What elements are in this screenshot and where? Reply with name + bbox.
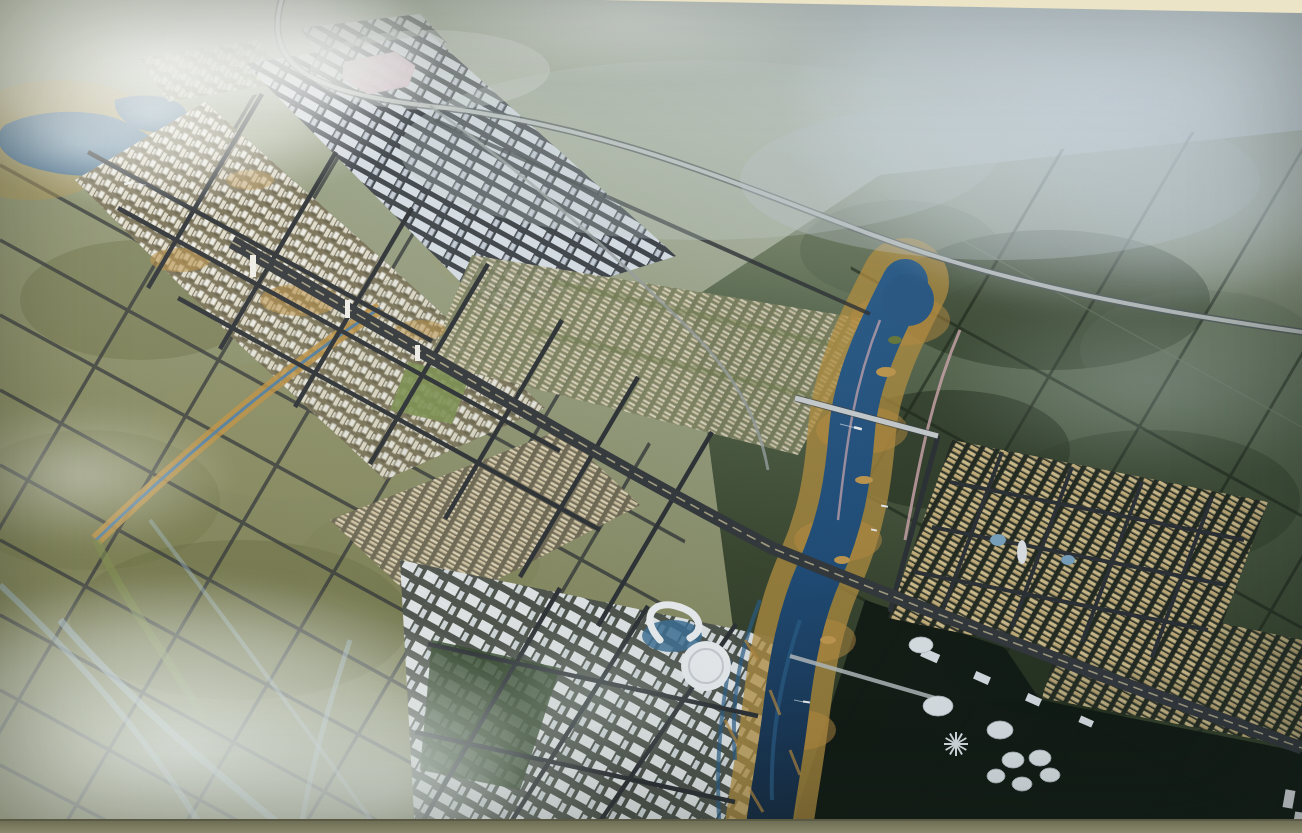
rendering-canvas — [0, 0, 1302, 833]
masterplan-aerial-photo — [0, 0, 1302, 833]
photo-bottom-edge — [0, 819, 1302, 833]
